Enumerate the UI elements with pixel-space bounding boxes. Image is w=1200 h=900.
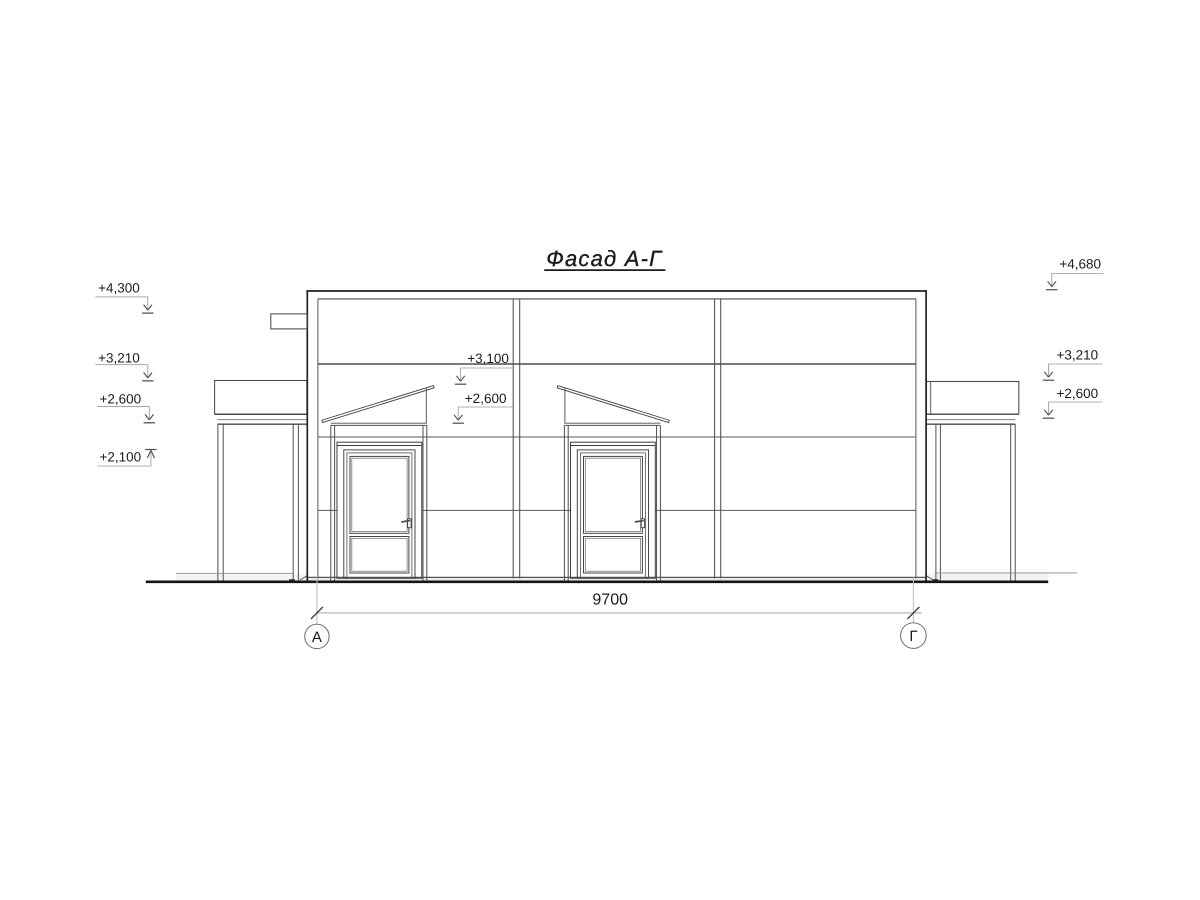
- svg-text:+2,600: +2,600: [465, 391, 507, 406]
- svg-text:+2,100: +2,100: [100, 450, 142, 465]
- svg-text:9700: 9700: [592, 591, 628, 608]
- svg-text:+2,600: +2,600: [1057, 386, 1099, 401]
- svg-text:+3,210: +3,210: [1057, 348, 1099, 363]
- svg-text:+4,680: +4,680: [1059, 257, 1101, 272]
- svg-text:+4,300: +4,300: [98, 281, 140, 296]
- svg-text:+3,100: +3,100: [467, 351, 509, 366]
- svg-text:+2,600: +2,600: [100, 391, 142, 406]
- svg-text:А: А: [312, 629, 322, 646]
- svg-text:Фасад А-Г: Фасад А-Г: [546, 246, 663, 271]
- svg-text:+3,210: +3,210: [98, 350, 140, 365]
- svg-text:Г: Г: [909, 628, 917, 645]
